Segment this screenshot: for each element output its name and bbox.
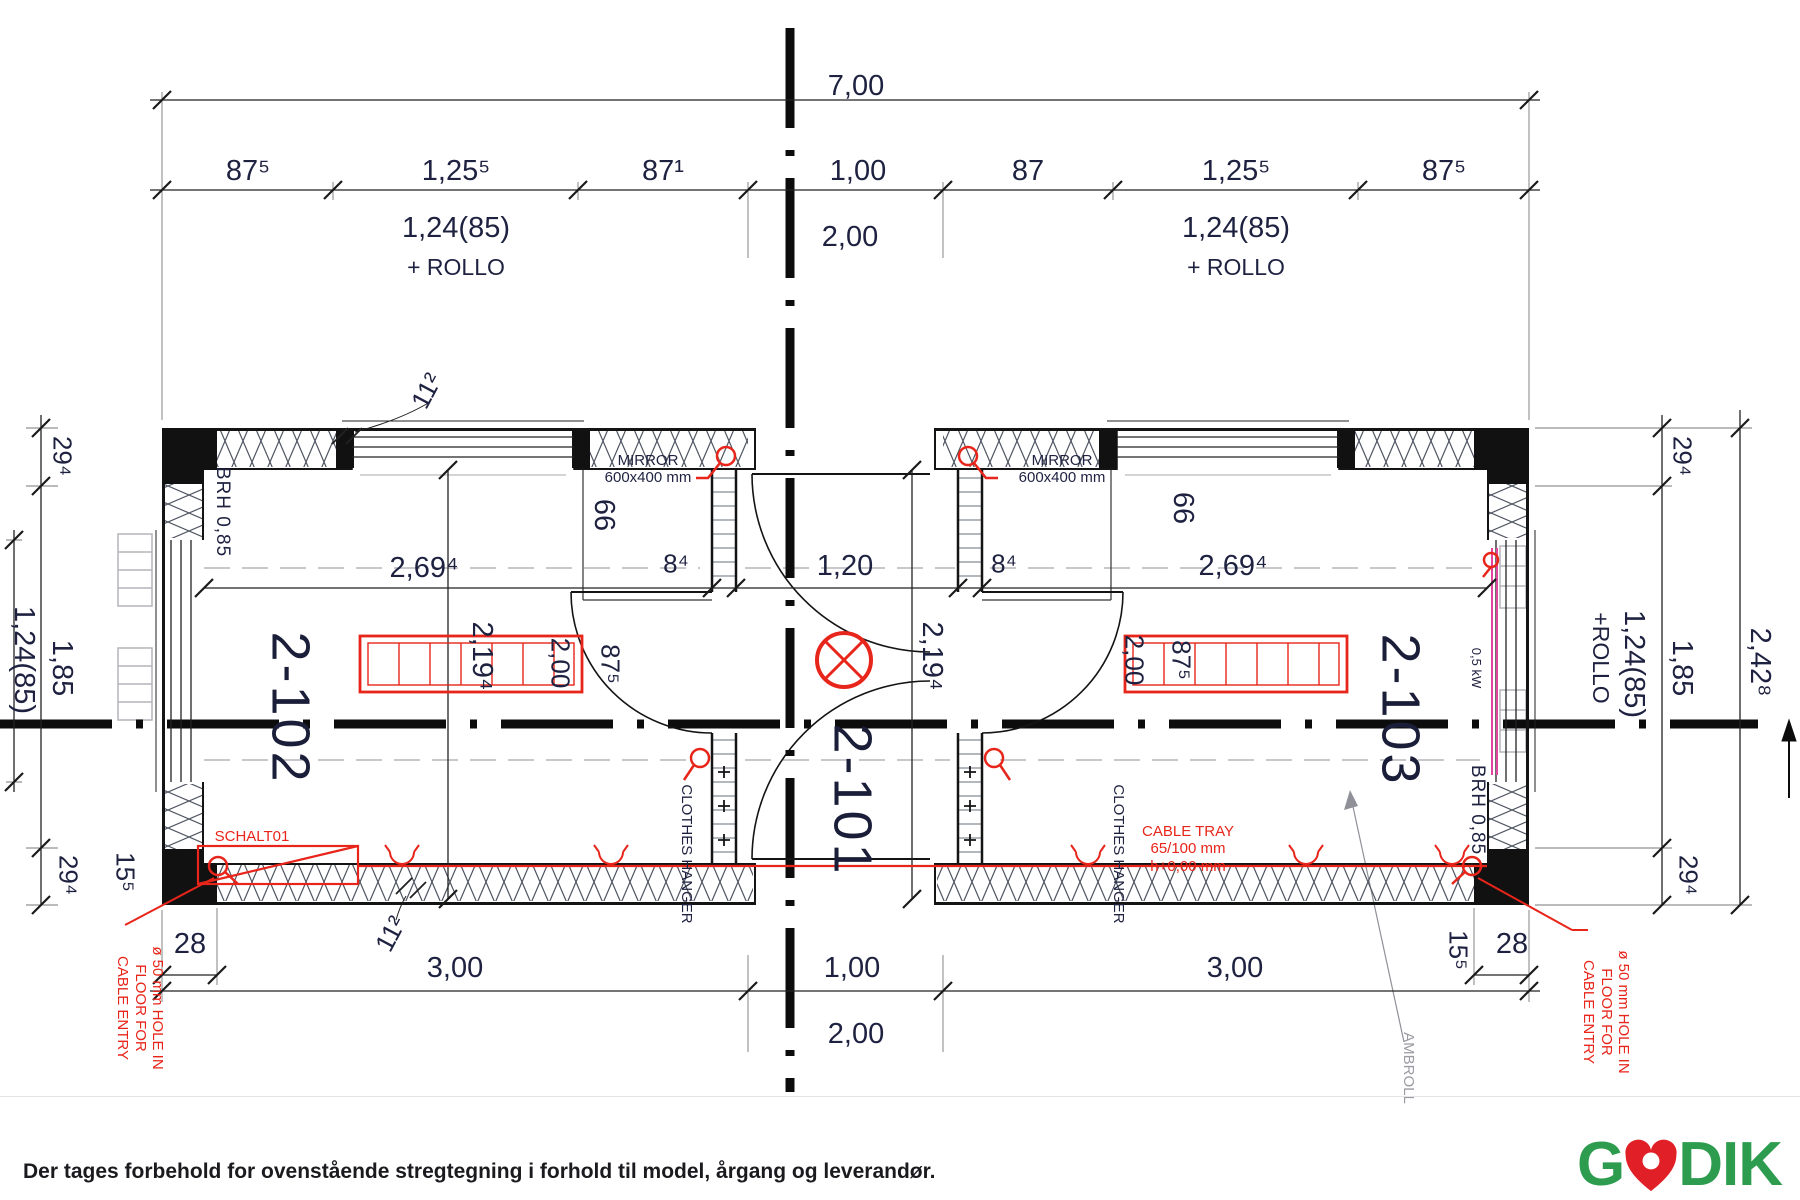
floor-plan-canvas: 7,00 87⁵ 1,25⁵ 87¹ 1,00 87 1,25⁵ 87⁵ 1,2… <box>0 0 1800 1200</box>
footer-disclaimer: Der tages forbehold for ovenstående stre… <box>23 1160 935 1184</box>
dim-partition-right: 8⁴ <box>991 550 1017 577</box>
room-label-left: 2-102 <box>262 631 319 784</box>
dim-window-right-rollo: + ROLLO <box>1187 255 1285 279</box>
dim-radiator-right-height: 87⁵ <box>1167 640 1194 680</box>
room-label-center: 2-101 <box>824 723 881 876</box>
dim-depth-left: 2,19⁴ <box>467 622 497 691</box>
clothes-hanger-label-right: CLOTHES HANGER <box>1110 784 1126 923</box>
dim-partition-left: 8⁴ <box>663 550 689 577</box>
dim-left-chain-1: 29⁴ <box>48 436 75 476</box>
logo-letter-g: G <box>1577 1134 1624 1196</box>
hole-right-line2: FLOOR FOR <box>1597 950 1614 1073</box>
window-side-left <box>156 530 191 792</box>
dim-left-chain-3: 29⁴ <box>54 855 81 895</box>
mirror-label-right: MIRROR 600x400 mm <box>1019 452 1106 487</box>
mirror-right-line1: MIRROR <box>1019 452 1106 469</box>
dim-top-chain-5: 87 <box>1012 156 1044 186</box>
dim-room-right-width: 2,69⁴ <box>1199 551 1268 581</box>
dim-bottom-right-module: 3,00 <box>1207 953 1263 983</box>
mirror-label-left: MIRROR 600x400 mm <box>605 452 692 487</box>
dim-right-overall: 2,42⁸ <box>1745 628 1775 697</box>
dim-bottom-center-module: 2,00 <box>828 1019 884 1049</box>
heater-rating-label: 0,5 kW <box>1469 648 1483 688</box>
clothes-hanger-label-left: CLOTHES HANGER <box>678 784 694 923</box>
hole-left-line3: CABLE ENTRY <box>114 946 131 1069</box>
room-label-right: 2-103 <box>1372 633 1429 786</box>
mirror-left-line2: 600x400 mm <box>605 469 692 486</box>
cable-tray-line3: h+0,00 mm <box>1142 858 1234 875</box>
dim-top-chain-2: 1,25⁵ <box>422 156 490 186</box>
cable-entry-label-left: ø 50 mm HOLE IN FLOOR FOR CABLE ENTRY <box>114 946 166 1069</box>
dim-bottom-center: 1,00 <box>824 953 880 983</box>
cable-entry-label-right: ø 50 mm HOLE IN FLOOR FOR CABLE ENTRY <box>1580 950 1632 1073</box>
dim-post-left: 15⁵ <box>111 852 138 892</box>
dim-right-chain-1: 29⁴ <box>1668 436 1695 476</box>
dim-corner-left: 28 <box>174 929 206 959</box>
mirror-right-line2: 600x400 mm <box>1019 469 1106 486</box>
hole-right-line3: CABLE ENTRY <box>1580 950 1597 1073</box>
dim-right-window-rollo: +ROLLO <box>1589 612 1613 703</box>
cable-tray-line2: 65/100 mm <box>1142 840 1234 857</box>
dim-radiator-left-height: 87⁵ <box>596 644 623 684</box>
dim-top-chain-3: 87¹ <box>642 156 684 186</box>
wall-joint-marks <box>332 402 430 920</box>
radiator-right-icon <box>1125 636 1347 692</box>
sill-height-label-right: BRH 0,85 <box>1467 765 1487 855</box>
dim-left-window: 1,24(85) <box>9 606 39 714</box>
hole-left-line1: ø 50 mm HOLE IN <box>149 946 166 1069</box>
dim-radiator-left-length: 2,00 <box>546 638 573 689</box>
dim-top-chain-1: 87⁵ <box>226 156 270 186</box>
dim-window-left-rollo: + ROLLO <box>407 255 505 279</box>
cable-tray-line1: CABLE TRAY <box>1142 823 1234 840</box>
hole-left-line2: FLOOR FOR <box>131 946 148 1069</box>
ceiling-lamp-icon <box>817 633 871 687</box>
dim-radiator-right-length: 2,00 <box>1120 635 1147 686</box>
dim-closet-right: 66 <box>1168 492 1198 524</box>
dim-closet-left: 66 <box>589 499 619 531</box>
dim-right-window: 1,24(85) <box>1619 610 1649 718</box>
dimension-guides <box>6 92 1752 1052</box>
dim-top-chain-6: 1,25⁵ <box>1202 156 1270 186</box>
dim-post-right: 15⁵ <box>1444 930 1471 970</box>
cable-tray-label: CABLE TRAY 65/100 mm h+0,00 mm <box>1142 823 1234 875</box>
switchboard-label: SCHALT01 <box>215 829 290 845</box>
dim-corridor-width: 1,20 <box>817 551 873 581</box>
logo-letters-dik: DIK <box>1678 1134 1782 1196</box>
dim-top-chain-7: 87⁵ <box>1422 156 1466 186</box>
dim-right-chain-2: 1,85 <box>1667 640 1697 696</box>
cable-hook-icons <box>385 845 1469 864</box>
dim-overall-width: 7,00 <box>828 71 884 101</box>
dim-corner-right: 28 <box>1496 929 1528 959</box>
mirror-left-line1: MIRROR <box>605 452 692 469</box>
hole-right-line1: ø 50 mm HOLE IN <box>1615 950 1632 1073</box>
dim-right-chain-3: 29⁴ <box>1674 855 1701 895</box>
godik-logo: G DIK <box>1577 1134 1782 1196</box>
dim-room-left-width: 2,69⁴ <box>390 553 459 583</box>
roller-product-label: AMBROLL <box>1400 1032 1416 1104</box>
dim-top-center-module: 2,00 <box>822 222 878 252</box>
roller-leader-arrow <box>1344 790 1404 1042</box>
sill-height-label-left: BRH 0,85 <box>212 467 232 557</box>
dim-window-right: 1,24(85) <box>1182 213 1290 243</box>
dim-depth-center: 2,19⁴ <box>917 622 947 691</box>
dim-top-chain-4: 1,00 <box>830 156 886 186</box>
dim-bottom-left-module: 3,00 <box>427 953 483 983</box>
heart-icon <box>1622 1139 1680 1195</box>
dim-left-chain-2: 1,85 <box>47 640 77 696</box>
dim-window-left: 1,24(85) <box>402 213 510 243</box>
footer-divider <box>0 1096 1800 1097</box>
